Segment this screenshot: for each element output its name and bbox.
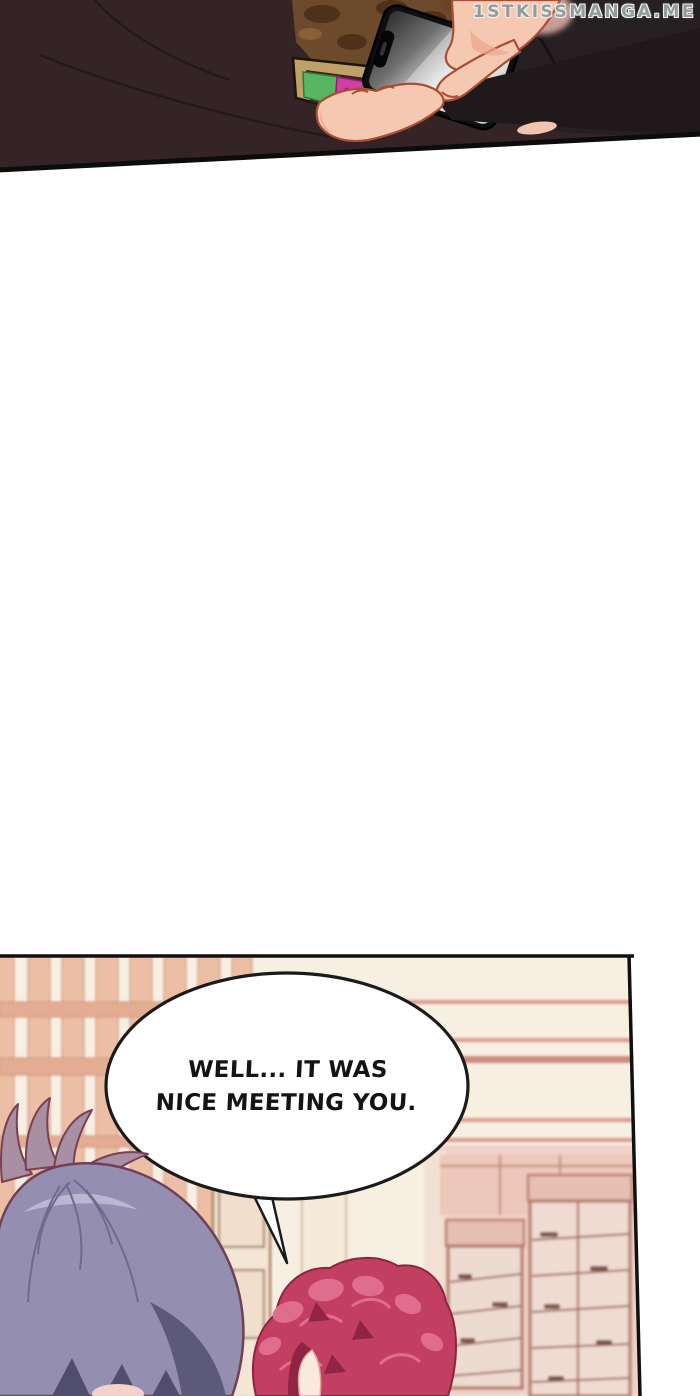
display-case-right (530, 1201, 630, 1396)
case-right-top (528, 1175, 632, 1201)
case-left-top (446, 1220, 524, 1246)
panel-bottom-scene: WELL... IT WAS NICE MEETING YOU. (0, 950, 700, 1396)
site-watermark: 1STKISSMANGA.ME (473, 2, 696, 22)
manga-page: 1STKISSMANGA.ME (0, 0, 700, 1396)
panel-bottom-art (0, 950, 700, 1396)
panel-top-scene (0, 0, 700, 175)
speech-line-2: NICE MEETING YOU. (155, 1087, 418, 1120)
panel-top-art (0, 0, 700, 175)
display-case-left (448, 1246, 522, 1388)
speech-line-1: WELL... IT WAS (157, 1054, 420, 1087)
lining-highlight (298, 28, 322, 40)
speech-bubble-text: WELL... IT WAS NICE MEETING YOU. (155, 1054, 419, 1120)
